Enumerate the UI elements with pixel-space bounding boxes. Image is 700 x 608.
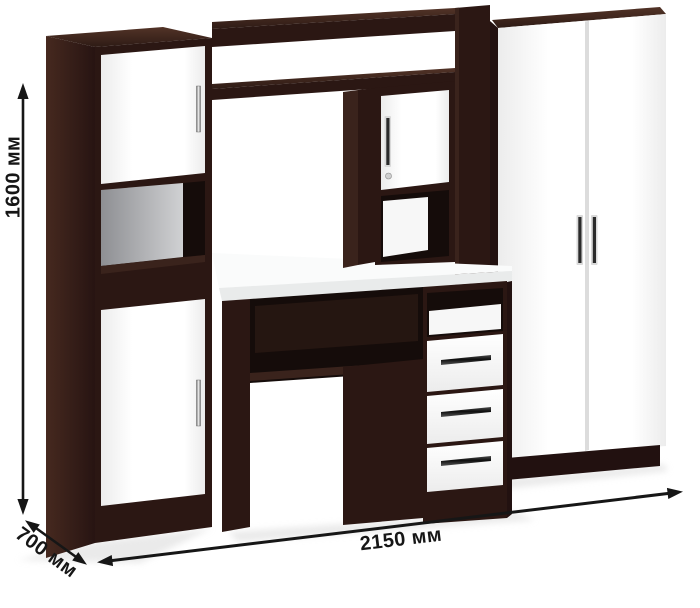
open-niche-back [101,183,183,266]
left-cabinet-side-panel [46,36,95,558]
arrowhead-icon [667,486,684,499]
desk-drawer-3 [427,441,503,492]
wardrobe-handle-icon [591,215,598,265]
hutch-divider-panel [343,88,375,268]
hutch-top-shelf [212,8,455,47]
drawer-pedestal [423,281,512,524]
pedestal-side-sliver [507,281,512,518]
hutch-small-cabinet [375,81,455,265]
open-niche-side-shadow [183,181,205,257]
left-cabinet-bottom-door [101,299,205,506]
left-cabinet [46,27,212,558]
desk-drawer-2 [427,389,503,444]
lock-icon [386,173,392,179]
wardrobe-handle-icon [577,215,584,265]
wardrobe [490,7,666,480]
left-cabinet-top-door [101,46,205,184]
door-handle-icon [385,116,392,167]
desk-left-leg [222,299,250,532]
desk-drawer-1 [427,334,503,392]
door-handle-icon [197,380,201,426]
small-cabinet-shelf-back [383,197,428,257]
desk [222,281,512,532]
door-handle-icon [197,86,201,132]
desk-middle-panel [343,359,423,525]
arrowhead-up-icon [17,83,28,99]
furniture-dimension-diagram: 1600 мм 700 мм 2150 мм [0,0,700,608]
arrowhead-down-icon [17,499,28,515]
wardrobe-door-gap [585,21,589,451]
height-dimension-label: 1600 мм [3,136,26,218]
furniture-render [0,0,700,608]
